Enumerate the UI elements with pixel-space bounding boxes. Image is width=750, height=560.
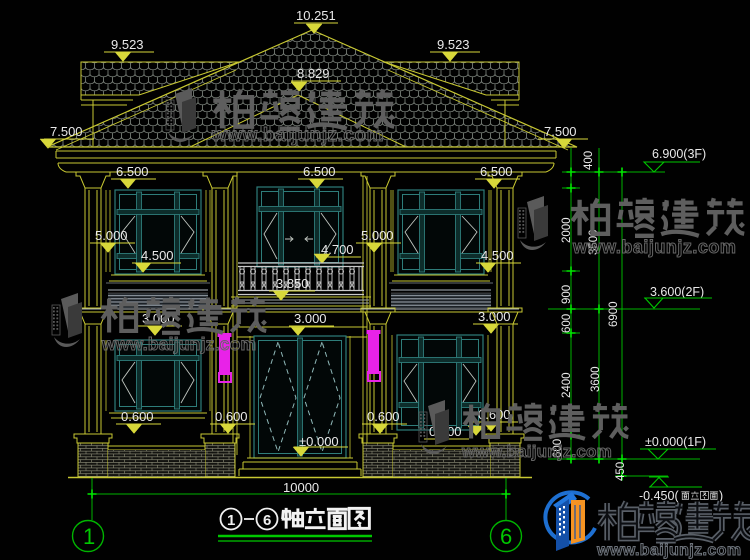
- svg-text:3.000: 3.000: [294, 311, 327, 326]
- svg-text:4.500: 4.500: [481, 248, 514, 263]
- svg-text:-0.450(: -0.450(: [639, 489, 679, 503]
- svg-text:www.baijunjz.com: www.baijunjz.com: [596, 542, 742, 559]
- svg-text:5.000: 5.000: [361, 228, 394, 243]
- svg-text:www.baijunjz.com: www.baijunjz.com: [572, 237, 736, 257]
- svg-text:2000: 2000: [561, 217, 573, 243]
- svg-text:7.500: 7.500: [544, 124, 577, 139]
- svg-text:6: 6: [263, 512, 271, 529]
- svg-text:6.500: 6.500: [303, 164, 336, 179]
- svg-text:0.600: 0.600: [367, 409, 400, 424]
- svg-text:6.500: 6.500: [480, 164, 513, 179]
- svg-text:3600: 3600: [590, 366, 602, 392]
- svg-text:1: 1: [83, 524, 95, 549]
- svg-text:www.baijunjz.com: www.baijunjz.com: [461, 442, 612, 461]
- svg-text:9.523: 9.523: [437, 37, 470, 52]
- svg-text:3.600(2F): 3.600(2F): [650, 285, 704, 299]
- svg-text:7.500: 7.500: [50, 124, 83, 139]
- svg-text:3.850: 3.850: [276, 276, 309, 291]
- svg-text:6: 6: [500, 524, 512, 549]
- svg-text:5.000: 5.000: [95, 228, 128, 243]
- svg-text:10000: 10000: [283, 480, 319, 495]
- svg-text:0.600: 0.600: [215, 409, 248, 424]
- svg-text:6900: 6900: [608, 301, 620, 327]
- svg-text:8.829: 8.829: [297, 66, 330, 81]
- svg-text:600: 600: [561, 314, 573, 333]
- svg-text:2400: 2400: [561, 372, 573, 398]
- svg-text:www.baijunjz.com: www.baijunjz.com: [101, 334, 256, 354]
- svg-text:400: 400: [583, 151, 595, 170]
- svg-text:9.523: 9.523: [111, 37, 144, 52]
- svg-text:4.500: 4.500: [141, 248, 174, 263]
- svg-text:6.900(3F): 6.900(3F): [652, 147, 706, 161]
- svg-text:0.600: 0.600: [121, 409, 154, 424]
- svg-text:±0.000(1F): ±0.000(1F): [645, 435, 706, 449]
- svg-text:450: 450: [615, 462, 627, 481]
- svg-text:): ): [719, 489, 723, 503]
- svg-text:10.251: 10.251: [296, 8, 336, 23]
- svg-text:1: 1: [227, 512, 235, 529]
- svg-text:6.500: 6.500: [116, 164, 149, 179]
- svg-text:www.baijunjz.com: www.baijunjz.com: [211, 125, 384, 146]
- svg-text:900: 900: [561, 285, 573, 304]
